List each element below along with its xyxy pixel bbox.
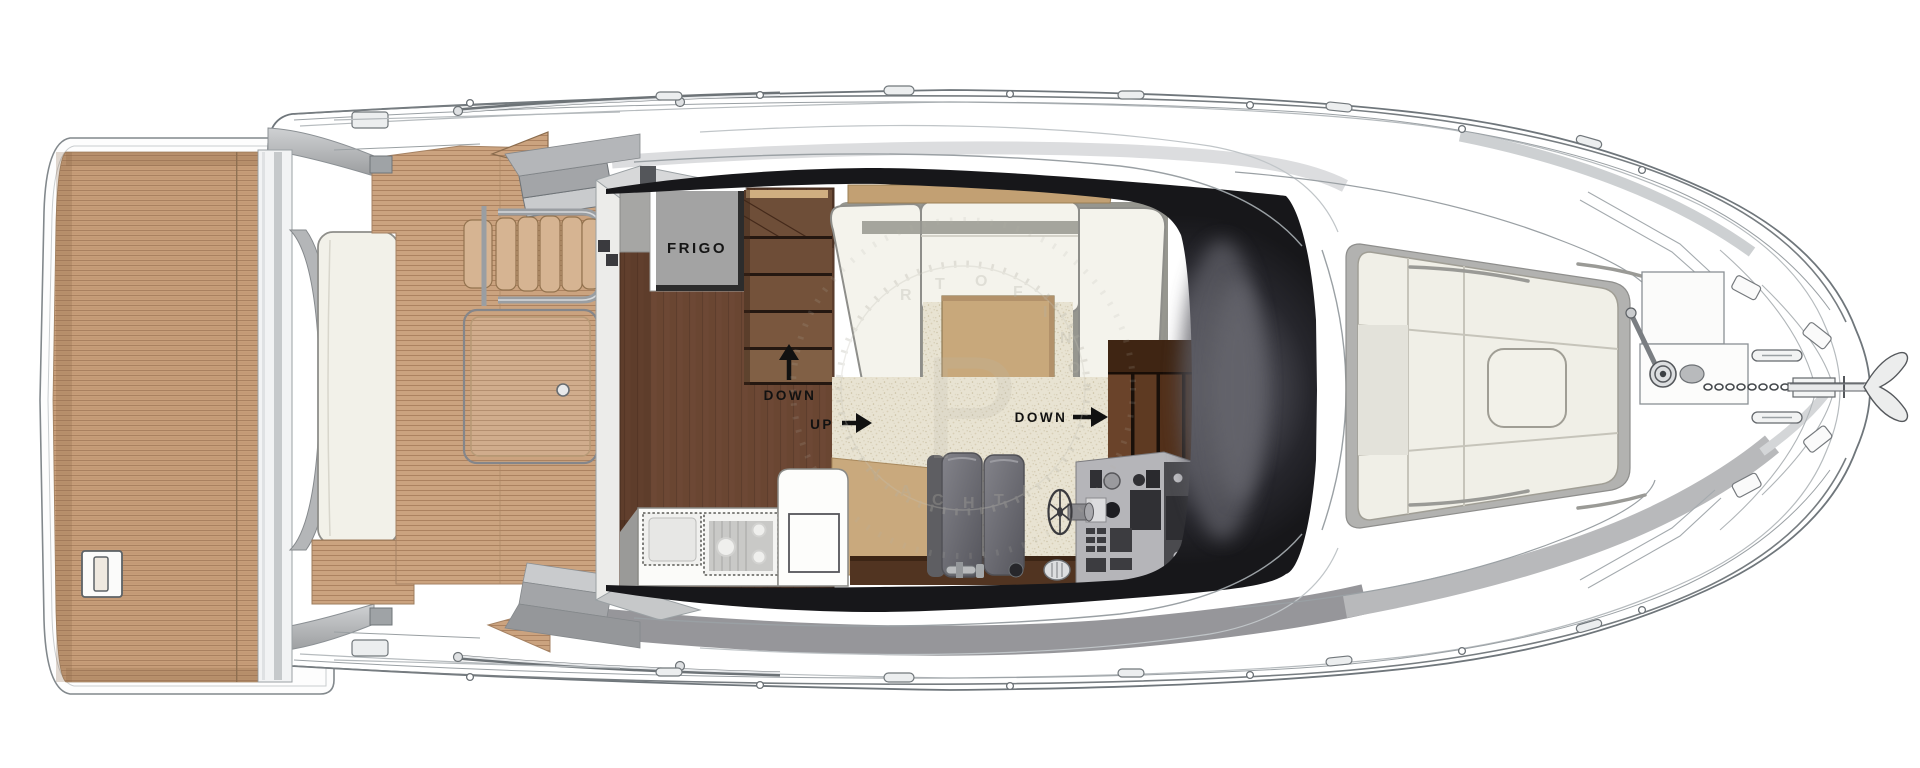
svg-text:H: H xyxy=(963,495,975,512)
svg-text:T: T xyxy=(994,492,1004,509)
svg-text:N: N xyxy=(1060,330,1072,347)
svg-text:FRIGO: FRIGO xyxy=(667,240,727,257)
svg-text:I: I xyxy=(1043,304,1047,321)
svg-text:DOWN: DOWN xyxy=(1015,410,1068,425)
svg-text:I: I xyxy=(1022,483,1026,500)
svg-text:P: P xyxy=(922,326,1019,489)
svg-text:O: O xyxy=(1068,360,1080,377)
svg-text:R: R xyxy=(900,287,912,304)
svg-text:A: A xyxy=(900,483,912,500)
svg-text:T: T xyxy=(935,276,945,293)
svg-text:F: F xyxy=(1013,284,1023,301)
svg-text:C: C xyxy=(932,492,944,509)
svg-text:O: O xyxy=(975,273,987,290)
svg-text:DOWN: DOWN xyxy=(764,388,817,403)
svg-text:Y: Y xyxy=(870,467,881,484)
svg-text:UP: UP xyxy=(810,417,834,432)
